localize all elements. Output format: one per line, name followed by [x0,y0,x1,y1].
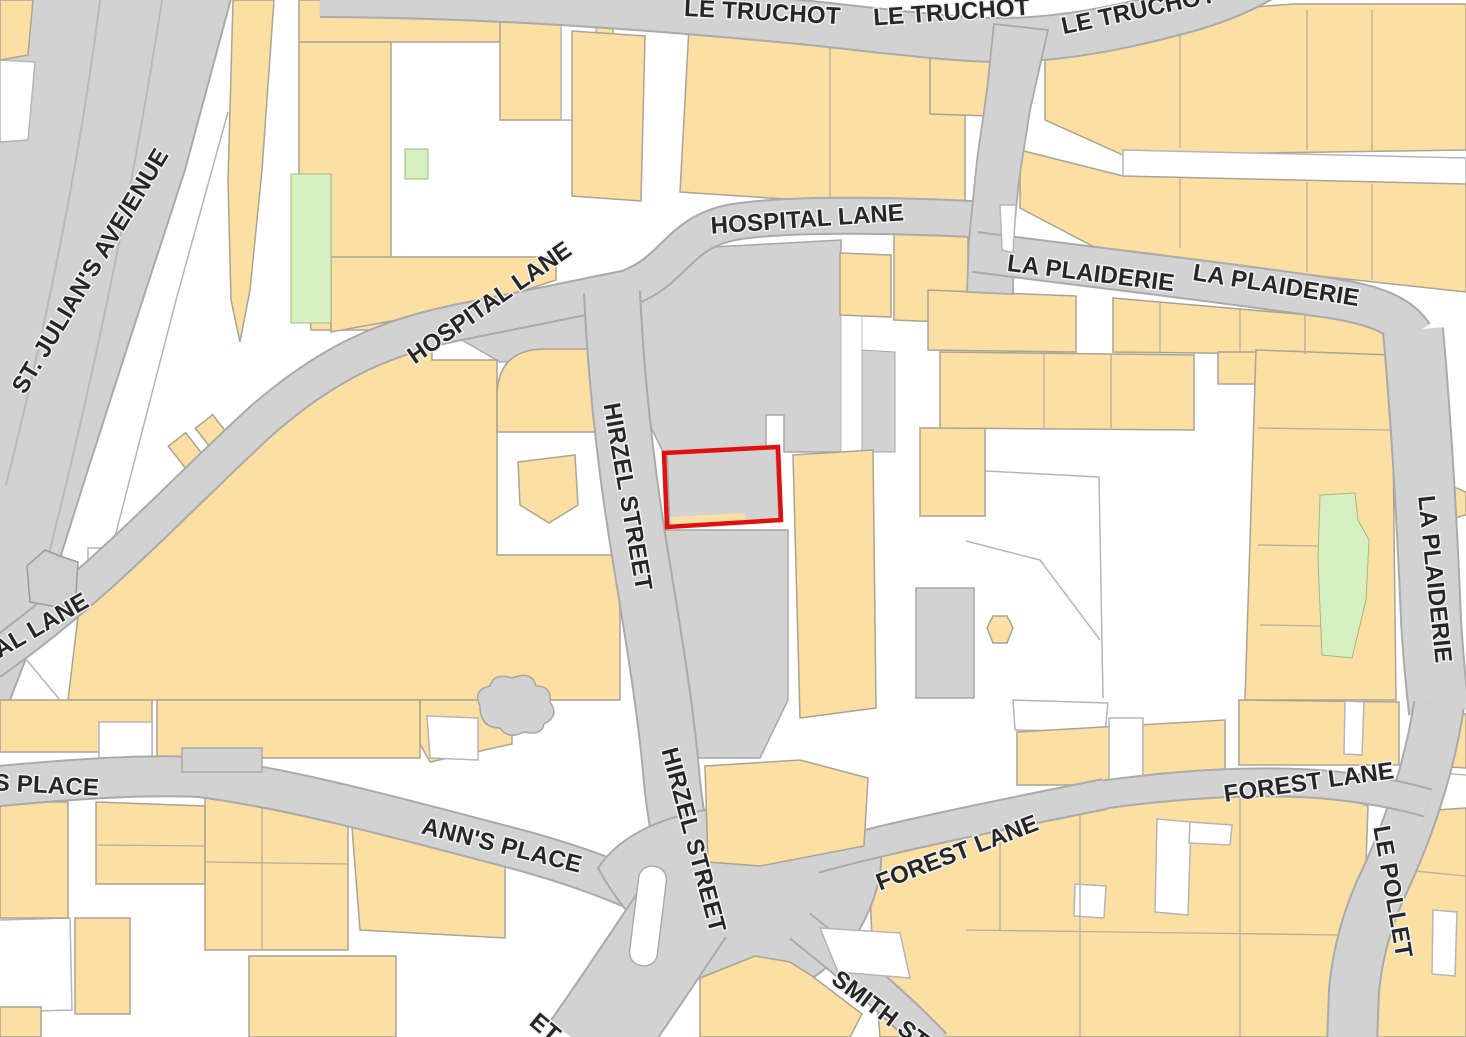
svg-text:S PLACE: S PLACE [0,769,100,801]
